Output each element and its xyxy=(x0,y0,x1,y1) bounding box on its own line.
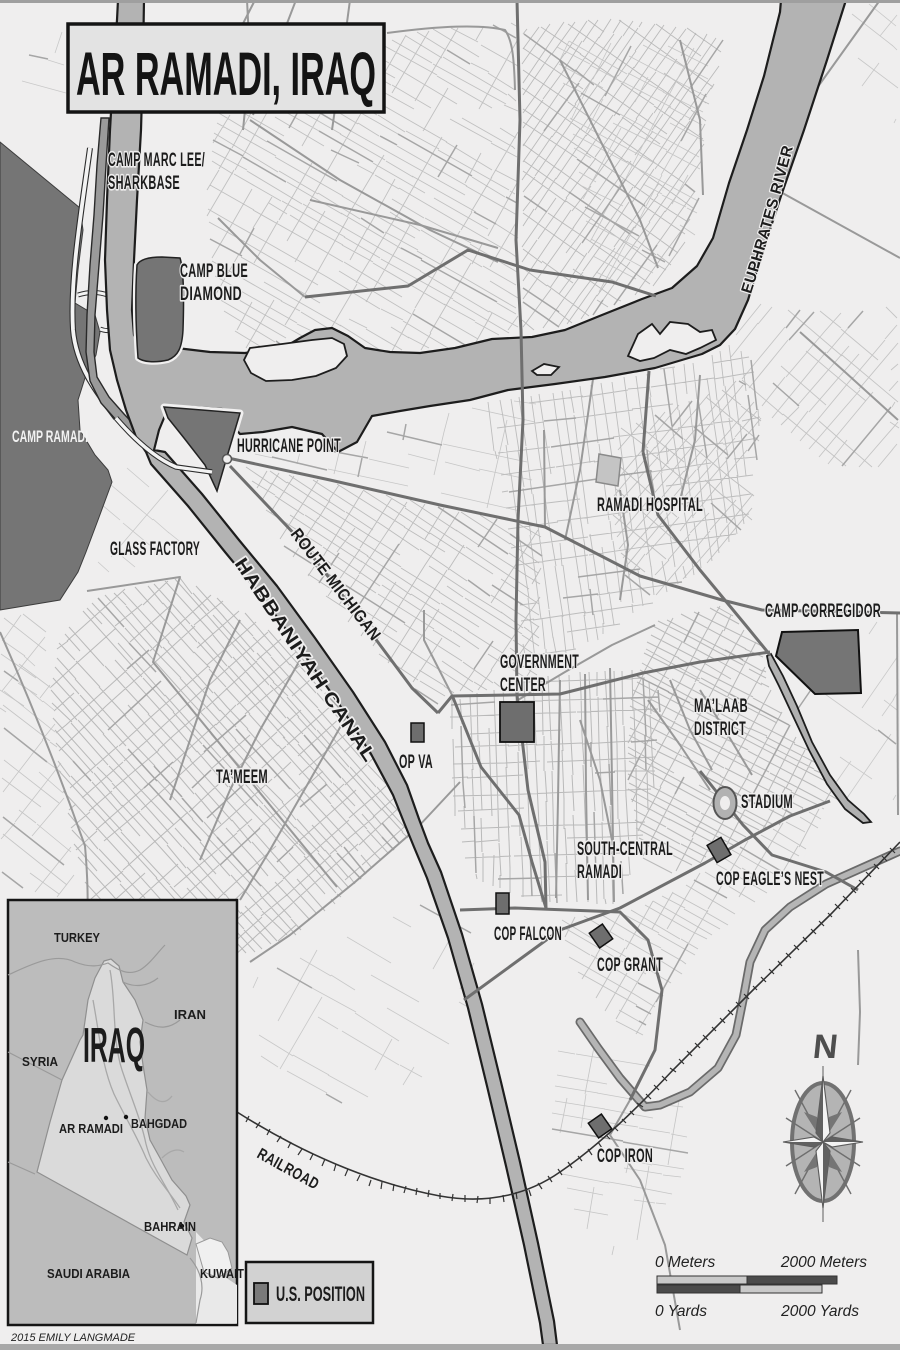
svg-text:CAMP MARC LEE/: CAMP MARC LEE/ xyxy=(108,150,205,171)
svg-text:DIAMOND: DIAMOND xyxy=(180,284,242,305)
svg-text:KUWAIT: KUWAIT xyxy=(200,1266,244,1281)
svg-text:RAMADI: RAMADI xyxy=(577,862,622,883)
svg-text:COP EAGLE’S NEST: COP EAGLE’S NEST xyxy=(716,869,824,890)
svg-text:BAHRAIN: BAHRAIN xyxy=(144,1220,196,1234)
svg-text:AR RAMADI, IRAQ: AR RAMADI, IRAQ xyxy=(76,40,376,108)
svg-text:CENTER: CENTER xyxy=(500,675,546,696)
svg-text:0 Meters: 0 Meters xyxy=(655,1254,716,1271)
svg-text:BAHGDAD: BAHGDAD xyxy=(131,1117,187,1131)
svg-text:2000 Yards: 2000 Yards xyxy=(780,1303,859,1320)
svg-text:CAMP BLUE: CAMP BLUE xyxy=(180,261,248,282)
svg-text:CAMP RAMADI: CAMP RAMADI xyxy=(12,427,88,446)
svg-text:GLASS FACTORY: GLASS FACTORY xyxy=(110,539,200,560)
svg-text:0 Yards: 0 Yards xyxy=(655,1303,707,1320)
svg-text:RAMADI HOSPITAL: RAMADI HOSPITAL xyxy=(597,495,703,516)
svg-text:U.S. POSITION: U.S. POSITION xyxy=(276,1283,365,1306)
svg-text:IRAN: IRAN xyxy=(174,1007,206,1022)
svg-text:2000 Meters: 2000 Meters xyxy=(780,1254,867,1271)
svg-text:SAUDI ARABIA: SAUDI ARABIA xyxy=(47,1266,131,1281)
svg-text:COP IRON: COP IRON xyxy=(597,1146,653,1167)
svg-text:COP GRANT: COP GRANT xyxy=(597,955,663,976)
svg-text:SYRIA: SYRIA xyxy=(22,1054,59,1069)
svg-text:CAMP CORREGIDOR: CAMP CORREGIDOR xyxy=(765,601,881,622)
svg-text:DISTRICT: DISTRICT xyxy=(694,719,746,740)
svg-text:OP VA: OP VA xyxy=(399,752,433,773)
svg-text:STADIUM: STADIUM xyxy=(741,792,793,813)
svg-text:TURKEY: TURKEY xyxy=(54,930,100,945)
svg-text:SHARKBASE: SHARKBASE xyxy=(108,173,180,194)
svg-text:IRAQ: IRAQ xyxy=(83,1019,145,1073)
svg-text:COP FALCON: COP FALCON xyxy=(494,924,562,945)
svg-text:AR RAMADI: AR RAMADI xyxy=(59,1122,123,1136)
svg-text:2015 EMILY LANGMADE: 2015 EMILY LANGMADE xyxy=(10,1332,136,1344)
svg-text:SOUTH-CENTRAL: SOUTH-CENTRAL xyxy=(577,839,673,860)
svg-text:MA’LAAB: MA’LAAB xyxy=(694,696,748,717)
svg-text:HURRICANE POINT: HURRICANE POINT xyxy=(237,436,341,457)
svg-text:N: N xyxy=(811,1028,840,1066)
svg-text:GOVERNMENT: GOVERNMENT xyxy=(500,652,579,673)
svg-text:TA’MEEM: TA’MEEM xyxy=(216,767,268,788)
